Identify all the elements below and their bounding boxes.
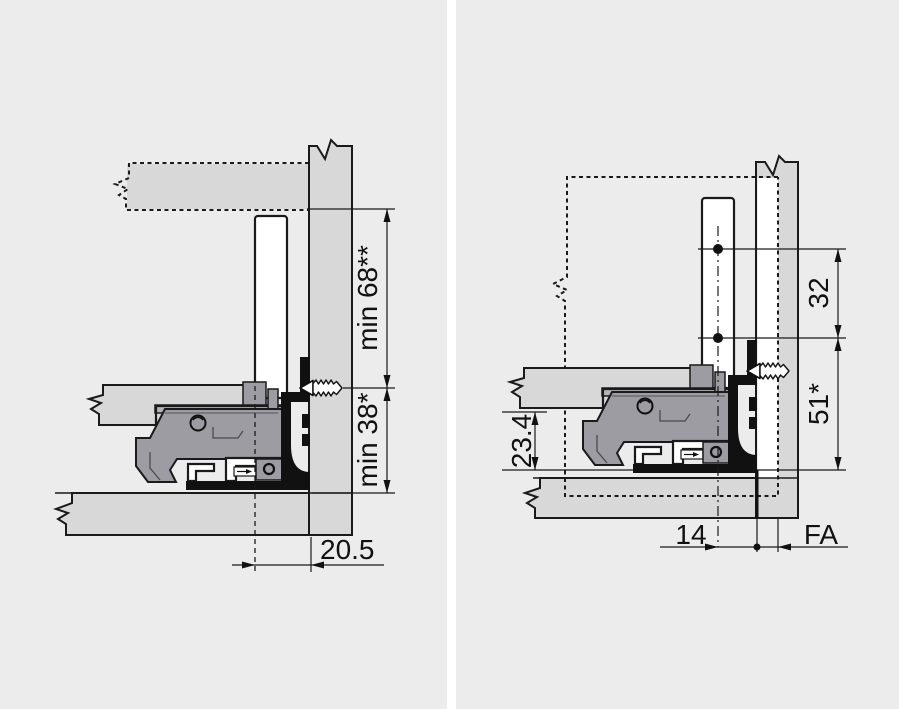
cabinet-rear-wall — [309, 140, 352, 535]
drill-hole-upper — [713, 244, 723, 254]
drawer-side-dashed-fill — [127, 164, 308, 209]
drawing-canvas: min 68** min 38* 20.5 — [0, 0, 899, 709]
dim-label-height: 51* — [803, 383, 834, 425]
dim-label-bottom-clearance: 23.4 — [506, 414, 537, 469]
dim-label-back-gap: 20.5 — [320, 534, 375, 565]
drill-hole-lower — [713, 333, 723, 343]
cabinet-bottom-panel — [56, 493, 352, 535]
right-panel-background — [456, 0, 899, 709]
left-panel-background — [0, 0, 447, 709]
dim-label-hole-spacing: 32 — [803, 277, 834, 308]
dim-label-fa-gap: FA — [804, 519, 839, 550]
back-panel-slot — [758, 178, 779, 478]
technical-drawing: min 68** min 38* 20.5 — [0, 0, 899, 709]
drawer-back-panel — [255, 216, 287, 398]
dim-label-min-back-height: min 68** — [352, 245, 383, 351]
dim-label-hole-to-front: 14 — [675, 519, 706, 550]
dim-label-min-runner-height: min 38* — [352, 392, 383, 487]
